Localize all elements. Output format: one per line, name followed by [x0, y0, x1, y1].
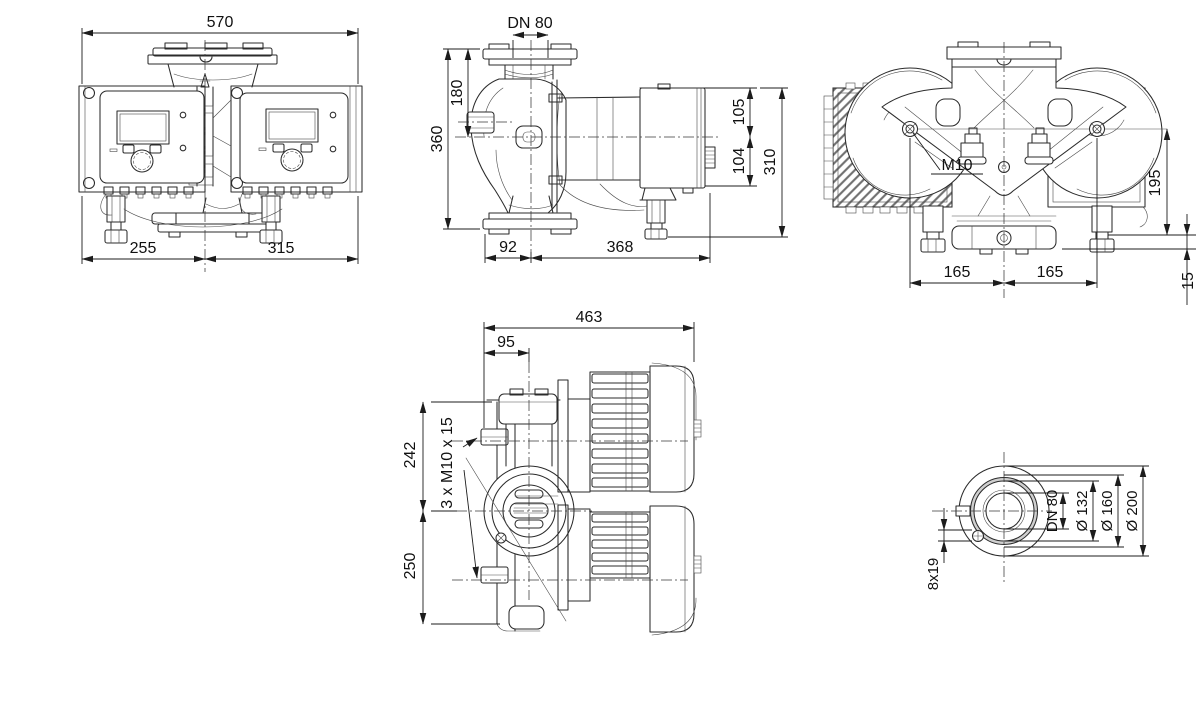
bottom-dim-242: 242: [402, 442, 419, 469]
bottom-dim-463: 463: [576, 309, 603, 326]
side-dim-310: 310: [762, 149, 779, 176]
connector-ribs: [705, 147, 715, 168]
flange-dim-200: Ø 200: [1124, 491, 1141, 532]
top-dim-15: 15: [1180, 272, 1197, 290]
control-module-left: [100, 91, 204, 183]
side-dim-104: 104: [731, 148, 748, 175]
side-dim-180: 180: [449, 80, 466, 107]
top-dim-165-left: 165: [944, 264, 971, 281]
front-dim-255: 255: [130, 240, 157, 257]
front-dim-315: 315: [268, 240, 295, 257]
top-dim-165-right: 165: [1037, 264, 1064, 281]
side-dim-dn80: DN 80: [507, 15, 552, 32]
side-dim-92: 92: [499, 239, 517, 256]
side-dim-360: 360: [429, 126, 446, 153]
bottom-dim-95: 95: [497, 334, 515, 351]
flange-dim-160: Ø 160: [1099, 491, 1116, 532]
technical-drawing: 570 255 315: [0, 0, 1200, 715]
flange-dim-132: Ø 132: [1074, 491, 1091, 532]
bottom-dim-screws: 3 x M10 x 15: [439, 417, 456, 509]
flange-dim-8x19: 8x19: [925, 558, 942, 591]
pressure-port: [467, 112, 494, 133]
top-dim-195: 195: [1147, 170, 1164, 197]
front-dim-570: 570: [207, 14, 234, 31]
bottom-dim-250: 250: [402, 553, 419, 580]
control-module-right: [240, 93, 348, 183]
drawing-page: 570 255 315: [0, 0, 1200, 715]
flange-dim-dn80: DN 80: [1044, 490, 1061, 533]
side-dim-368: 368: [607, 239, 634, 256]
top-dim-m10: M10: [941, 157, 972, 174]
side-dim-105: 105: [731, 99, 748, 126]
